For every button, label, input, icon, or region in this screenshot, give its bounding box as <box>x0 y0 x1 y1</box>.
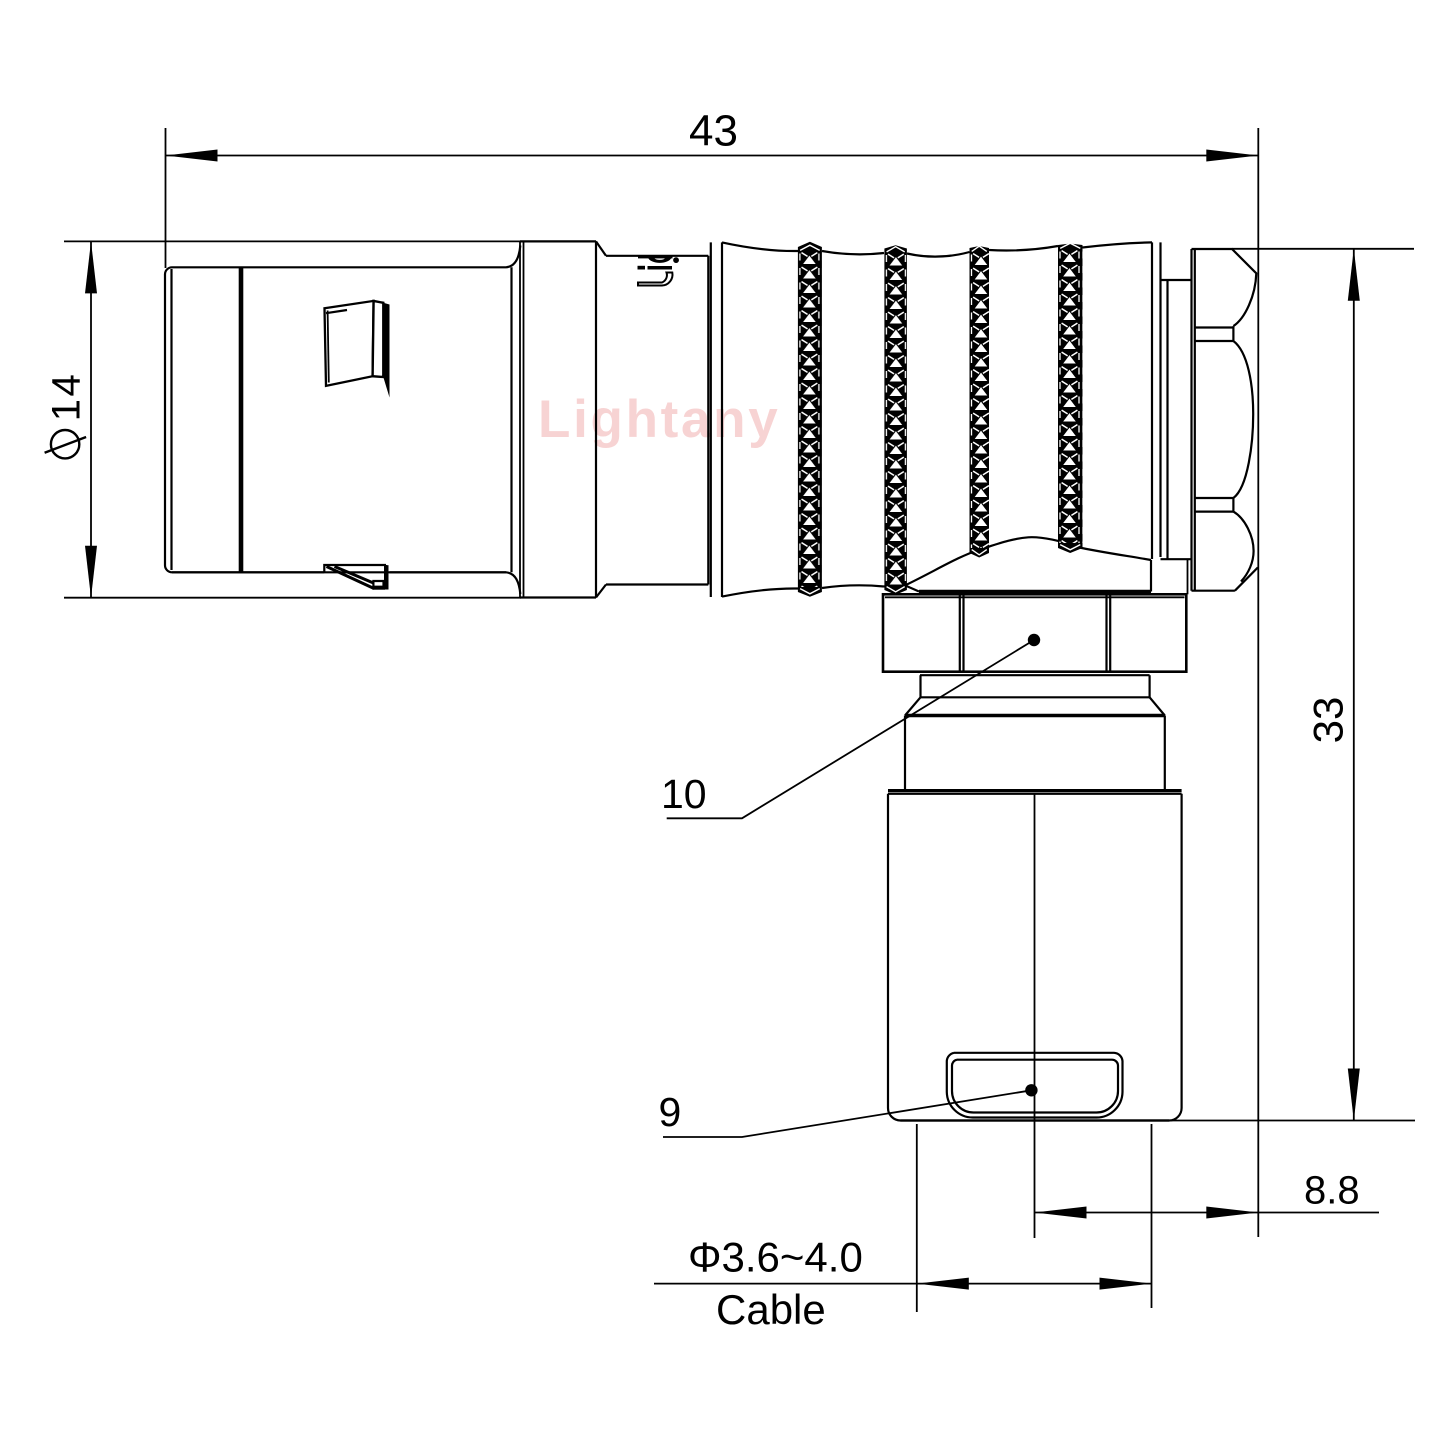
svg-text:Lightany: Lightany <box>538 390 780 449</box>
svg-text:9: 9 <box>659 1089 682 1135</box>
svg-text:43: 43 <box>689 107 738 156</box>
svg-text:10: 10 <box>661 771 707 817</box>
svg-text:14: 14 <box>45 372 89 422</box>
svg-text:Cable: Cable <box>716 1286 826 1333</box>
svg-text:8.8: 8.8 <box>1304 1169 1360 1213</box>
svg-text:Φ3.6~4.0: Φ3.6~4.0 <box>688 1234 863 1281</box>
svg-text:33: 33 <box>1305 697 1352 744</box>
